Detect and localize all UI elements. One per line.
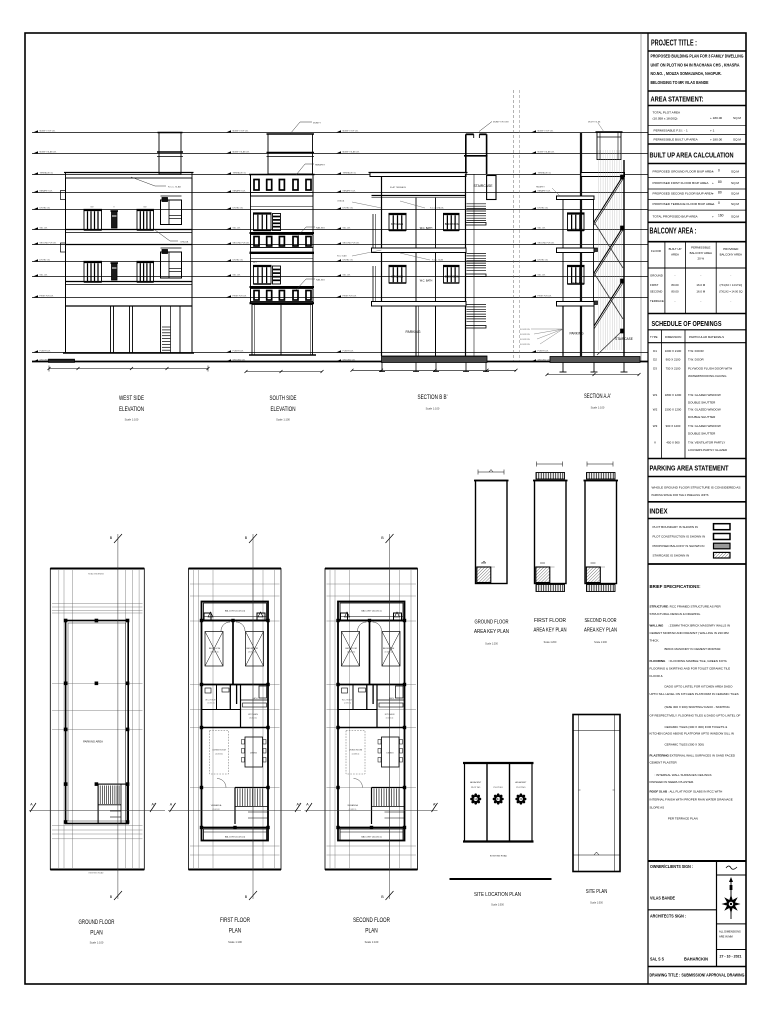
svg-text:PLOT NO: PLOT NO xyxy=(516,787,525,789)
svg-text:BATH: BATH xyxy=(389,697,395,700)
svg-text:0: 0 xyxy=(718,168,720,172)
svg-text:: 230MM THICK BRICK MASONRY WA: : 230MM THICK BRICK MASONRY WALLS IN xyxy=(668,624,730,628)
svg-text:BALCONY (10.0X1.0): BALCONY (10.0X1.0) xyxy=(361,836,381,839)
svg-text:STRUCTURAL DESIGN & DRAWING.: STRUCTURAL DESIGN & DRAWING. xyxy=(650,612,701,616)
svg-text:ARCHITECTS SIGN :: ARCHITECTS SIGN : xyxy=(650,914,686,919)
svg-text:T.W. DOOR: T.W. DOOR xyxy=(688,358,705,362)
svg-text:+: + xyxy=(712,169,714,173)
svg-text:▪ ▪ ▪: ▪ ▪ ▪ xyxy=(253,210,257,212)
svg-text:ELEVATION: ELEVATION xyxy=(119,406,144,413)
svg-text:TERRACE: TERRACE xyxy=(650,299,664,303)
svg-text:SECOND FLOOR: SECOND FLOOR xyxy=(585,618,617,624)
svg-text:LOUVERS PARTLY GLAZED: LOUVERS PARTLY GLAZED xyxy=(688,448,728,452)
svg-text:PLINTH LVL: PLINTH LVL xyxy=(233,350,245,352)
svg-text:WHOLE GROUND FLOOR STRUCTURE I: WHOLE GROUND FLOOR STRUCTURE IS CONSIDER… xyxy=(652,485,741,489)
svg-text:SECTION A.A': SECTION A.A' xyxy=(584,393,611,400)
svg-text:PARKING AREA: PARKING AREA xyxy=(83,739,103,743)
svg-text:OF RESPECTIVELY. FLOORING TILE: OF RESPECTIVELY. FLOORING TILES & DADO U… xyxy=(650,714,741,718)
svg-text:STRUCTURE: STRUCTURE xyxy=(650,605,669,609)
svg-text:900 X 1200: 900 X 1200 xyxy=(666,424,681,428)
svg-text:BRIEF SPECIFICATIONS:: BRIEF SPECIFICATIONS: xyxy=(650,584,701,589)
svg-text:Scale 1:200: Scale 1:200 xyxy=(544,641,557,644)
svg-text:BUILT UP AREA CALCULATION: BUILT UP AREA CALCULATION xyxy=(650,151,734,160)
svg-text:DRAWING TITLE : SUBMISSION/ AP: DRAWING TITLE : SUBMISSION/ APPROVAL DRA… xyxy=(650,973,745,978)
svg-text:T.W. DOOR: T.W. DOOR xyxy=(688,349,705,353)
svg-text:+ 180.00: + 180.00 xyxy=(710,137,722,141)
svg-text:16.0 M: 16.0 M xyxy=(696,290,705,294)
svg-text:SQ.M: SQ.M xyxy=(731,202,739,206)
svg-text:SQ.M: SQ.M xyxy=(733,116,741,120)
svg-text:FIRST FLR LVL: FIRST FLR LVL xyxy=(233,295,248,297)
svg-text:80.00: 80.00 xyxy=(671,290,679,294)
svg-text:RCC SLAB: RCC SLAB xyxy=(337,255,347,258)
svg-text:PARAPET: PARAPET xyxy=(536,186,546,189)
svg-text:ADJACENT: ADJACENT xyxy=(470,781,482,784)
svg-text:1000 X 2100: 1000 X 2100 xyxy=(665,349,682,353)
svg-text:SECOND FLR LVL: SECOND FLR LVL xyxy=(343,242,361,244)
svg-text:SQ.M: SQ.M xyxy=(731,192,739,196)
svg-text:(3.0X3.6): (3.0X3.6) xyxy=(385,652,393,654)
svg-text:KITCHEN DADO ABOVE PLATFORM UP: KITCHEN DADO ABOVE PLATFORM UPTO WINDOW … xyxy=(650,732,734,736)
svg-text:VERANDA: VERANDA xyxy=(571,281,585,285)
svg-text:FLOOR &: FLOOR & xyxy=(650,674,663,678)
svg-text:27 - 10 - 2021: 27 - 10 - 2021 xyxy=(720,955,742,959)
svg-text:+: + xyxy=(712,214,714,218)
svg-text:LINTEL LVL: LINTEL LVL xyxy=(233,259,245,261)
svg-text:GROUND LVL: GROUND LVL xyxy=(233,359,247,361)
svg-text:CEMENT PLASTER: CEMENT PLASTER xyxy=(650,761,678,765)
svg-text:CERAMIC TILES (300 X 300): CERAMIC TILES (300 X 300) xyxy=(650,743,704,747)
svg-text:EXISTING ROAD: EXISTING ROAD xyxy=(490,855,508,858)
svg-text:FLOOR FIN.: FLOOR FIN. xyxy=(520,329,531,331)
svg-text:WATERPROOFING FACING: WATERPROOFING FACING xyxy=(688,374,727,378)
svg-text:(4.0X3.0): (4.0X3.0) xyxy=(352,754,360,756)
svg-text:Scale 1:100: Scale 1:100 xyxy=(125,418,139,422)
svg-text:Scale 1:200: Scale 1:200 xyxy=(594,641,607,644)
svg-text:VILAS BANDE: VILAS BANDE xyxy=(650,896,675,901)
svg-text:PLINTH LVL: PLINTH LVL xyxy=(40,350,52,352)
svg-text:MUMTY SLAB LVL: MUMTY SLAB LVL xyxy=(538,150,556,153)
svg-text:PROJECT TITLE :: PROJECT TITLE : xyxy=(651,39,697,48)
svg-text:GROUND LVL: GROUND LVL xyxy=(538,359,552,361)
svg-text:450 X 900: 450 X 900 xyxy=(666,441,680,445)
svg-text:(7X1)X2 = 14.00 SQ: (7X1)X2 = 14.00 SQ xyxy=(719,290,742,294)
svg-text:FIRST FLOOR: FIRST FLOOR xyxy=(534,618,566,624)
svg-text:PLAN: PLAN xyxy=(90,931,103,937)
svg-text:MUMTY TOP LVL: MUMTY TOP LVL xyxy=(343,130,360,132)
svg-text:0: 0 xyxy=(718,201,720,205)
svg-text:16.0 M: 16.0 M xyxy=(696,283,705,287)
svg-text:CERAMIC TILES (300 X 300) FOR: CERAMIC TILES (300 X 300) FOR TOILETS & xyxy=(650,725,728,729)
svg-text:SECOND FLR LVL: SECOND FLR LVL xyxy=(233,242,251,244)
svg-text:SILL LVL: SILL LVL xyxy=(343,227,352,229)
svg-text:SILL LVL: SILL LVL xyxy=(538,274,547,276)
svg-text:BRICK MASONRY IN CEMENT MORTAR: BRICK MASONRY IN CEMENT MORTAR. xyxy=(650,647,722,651)
svg-text:PLOT CONSTRUCTION IS SHOWN IN: PLOT CONSTRUCTION IS SHOWN IN xyxy=(653,535,706,539)
svg-text:+: + xyxy=(712,202,714,206)
svg-text:80.00: 80.00 xyxy=(671,283,679,287)
svg-text:FIRST FLR LVL: FIRST FLR LVL xyxy=(538,295,553,297)
svg-text:80: 80 xyxy=(718,180,722,184)
svg-text:FIRST FLR LVL: FIRST FLR LVL xyxy=(343,295,358,297)
svg-text:PROPOSED GROUND FLOOR B/UP ARE: PROPOSED GROUND FLOOR B/UP AREA xyxy=(653,169,715,173)
svg-text:R.C.C. SLAB: R.C.C. SLAB xyxy=(168,185,181,188)
svg-text:LIVING ROOM: LIVING ROOM xyxy=(349,750,363,752)
svg-text:RAILING: RAILING xyxy=(316,278,325,281)
svg-text:PERMISSIBLE: PERMISSIBLE xyxy=(691,246,710,250)
svg-text:AREA KEY PLAN: AREA KEY PLAN xyxy=(534,628,567,634)
svg-text:1800 X 1200: 1800 X 1200 xyxy=(665,393,682,397)
svg-text:D2: D2 xyxy=(653,358,657,362)
svg-text:MUMTY SLAB LVL: MUMTY SLAB LVL xyxy=(233,150,251,153)
svg-text:SECTION B B': SECTION B B' xyxy=(418,394,448,401)
svg-text:-: - xyxy=(675,299,676,303)
svg-text:EXISTING ROAD: EXISTING ROAD xyxy=(89,872,104,875)
svg-text:PERMISSIBLE BUILT UP AREA: PERMISSIBLE BUILT UP AREA xyxy=(654,137,699,141)
svg-text:AREA KEY PLAN: AREA KEY PLAN xyxy=(584,628,617,634)
svg-text:Scale 1:100: Scale 1:100 xyxy=(276,418,290,422)
svg-text:PARAPET LVL: PARAPET LVL xyxy=(538,189,552,192)
svg-text:BUILT UP: BUILT UP xyxy=(669,247,682,251)
svg-text:1500 X 1200: 1500 X 1200 xyxy=(665,408,682,412)
svg-text:VERANDA: VERANDA xyxy=(347,804,358,807)
svg-text:THICK.: THICK. xyxy=(650,639,660,643)
svg-text:PROPOSED SECOND FLOOR B/UP ARE: PROPOSED SECOND FLOOR B/UP AREA xyxy=(653,192,714,196)
svg-text:PARKING: PARKING xyxy=(405,330,420,334)
svg-text:BALCONY (10.0X1.0): BALCONY (10.0X1.0) xyxy=(225,836,245,839)
svg-text:CHAJJA: CHAJJA xyxy=(180,240,189,243)
svg-text:(10.058 x 18.00Q): (10.058 x 18.00Q) xyxy=(653,117,678,121)
svg-text:-: - xyxy=(700,274,701,278)
svg-text:SLOPE AS: SLOPE AS xyxy=(650,806,665,810)
svg-text:VERANDA: VERANDA xyxy=(571,228,585,232)
svg-text:LINTEL LVL: LINTEL LVL xyxy=(40,259,52,261)
svg-text:BEDROOM: BEDROOM xyxy=(209,648,220,650)
svg-text:SILL LVL: SILL LVL xyxy=(40,274,49,276)
svg-text:-: - xyxy=(700,299,701,303)
svg-text:SECOND: SECOND xyxy=(650,290,662,294)
svg-text:PARAPET LVL: PARAPET LVL xyxy=(40,189,54,192)
svg-text:DIMENSION: DIMENSION xyxy=(665,335,681,339)
svg-text:(2.0X1.5): (2.0X1.5) xyxy=(212,809,220,811)
svg-text:BALCONY AREA :: BALCONY AREA : xyxy=(650,227,697,236)
svg-text:SILL LVL: SILL LVL xyxy=(538,227,547,229)
svg-text:UPTO SILL LEVEL ON KITCHEN PLA: UPTO SILL LEVEL ON KITCHEN PLATFORM IN C… xyxy=(650,692,739,696)
svg-text:+ 1: + 1 xyxy=(710,129,715,133)
svg-text:160: 160 xyxy=(718,213,724,217)
svg-text:W2: W2 xyxy=(653,408,658,412)
svg-text:PARAPET LVL: PARAPET LVL xyxy=(233,189,247,192)
svg-text:MUMTY TOP LVL: MUMTY TOP LVL xyxy=(40,130,57,132)
svg-text:: FLOORING MARBLE TILE, GREEN: : FLOORING MARBLE TILE, GREEN KOTA xyxy=(668,659,727,663)
svg-text:BALCONY AREA: BALCONY AREA xyxy=(720,253,742,257)
svg-text:W.C./TOILET: W.C./TOILET xyxy=(342,700,354,702)
svg-text:FLOOR FIN.: FLOOR FIN. xyxy=(520,334,531,336)
svg-text:W.C. BATH: W.C. BATH xyxy=(420,227,433,230)
svg-text:T.W. GLAZED WINDOW: T.W. GLAZED WINDOW xyxy=(688,424,721,428)
svg-text:Scale 1:100: Scale 1:100 xyxy=(426,407,440,411)
svg-text:CHAJJA: CHAJJA xyxy=(337,200,345,203)
svg-text:ROOF SLAB: ROOF SLAB xyxy=(650,790,668,794)
svg-text:FLOOR FIN.: FLOOR FIN. xyxy=(520,339,531,341)
svg-text:V: V xyxy=(654,441,656,445)
svg-text:PER TERRACE PLAN: PER TERRACE PLAN xyxy=(650,817,698,821)
svg-text:WALLING: WALLING xyxy=(650,624,664,628)
svg-text:KITCHEN: KITCHEN xyxy=(391,222,403,226)
svg-text:PARKING SPACE FOR THE 2 DWELLI: PARKING SPACE FOR THE 2 DWELLING UNITS xyxy=(652,493,709,497)
svg-text:-: - xyxy=(730,300,731,303)
svg-text:BEDROOM: BEDROOM xyxy=(345,648,356,650)
svg-text:PROPOSED BALCONY IS SHOWN IN: PROPOSED BALCONY IS SHOWN IN xyxy=(653,544,705,548)
svg-text:PARKING AREA STATEMENT: PARKING AREA STATEMENT xyxy=(650,464,729,473)
svg-text:BAHARCKIN: BAHARCKIN xyxy=(684,957,708,962)
svg-text:SQ.M: SQ.M xyxy=(731,181,739,185)
svg-text:WEST SIDE: WEST SIDE xyxy=(119,395,144,402)
svg-text:STAIRCASE IS SHOWN IN: STAIRCASE IS SHOWN IN xyxy=(653,553,690,557)
svg-text:LINTEL LVL: LINTEL LVL xyxy=(343,259,355,261)
svg-text:(7X1)X2 = 14 M SQ: (7X1)X2 = 14 M SQ xyxy=(719,283,742,287)
svg-text:BEDROOM: BEDROOM xyxy=(246,648,257,650)
svg-text:PROVIDED: PROVIDED xyxy=(723,247,738,251)
svg-text:GROUND FLOOR: GROUND FLOOR xyxy=(79,920,115,926)
svg-text:INTERNAL FINISH WITH PROPER RA: INTERNAL FINISH WITH PROPER RAIN WATER D… xyxy=(650,798,733,802)
svg-text:SCHEDULE OF OPENINGS: SCHEDULE OF OPENINGS xyxy=(652,319,722,328)
svg-text:LINTEL LVL: LINTEL LVL xyxy=(343,207,355,209)
svg-text:BATH: BATH xyxy=(253,697,259,700)
svg-text:(2.0X1.5): (2.0X1.5) xyxy=(344,703,351,705)
svg-text:PARKING: PARKING xyxy=(569,332,584,336)
svg-text:LINTEL LVL: LINTEL LVL xyxy=(233,207,245,209)
svg-text:PLOT NO: PLOT NO xyxy=(494,787,503,789)
svg-text:T.W. GLAZED WINDOW: T.W. GLAZED WINDOW xyxy=(688,408,721,412)
svg-text:PERMISSABLE F.S.I. - 1: PERMISSABLE F.S.I. - 1 xyxy=(654,129,688,133)
svg-text:: EXTERNAL WALL SURFACES IN SA: : EXTERNAL WALL SURFACES IN SAND FACED xyxy=(668,754,736,758)
svg-text:FIRST FLOOR: FIRST FLOOR xyxy=(220,918,251,924)
svg-text:BALCONY AREA: BALCONY AREA xyxy=(690,251,712,255)
svg-text:PLOT NO: PLOT NO xyxy=(471,787,480,789)
svg-text:PARAPET LVL: PARAPET LVL xyxy=(343,189,357,192)
svg-text:Scale 1:100: Scale 1:100 xyxy=(90,941,104,945)
svg-text:D3: D3 xyxy=(653,367,657,371)
svg-text:AREA KEY PLAN: AREA KEY PLAN xyxy=(474,629,509,635)
svg-text:(SIZE 300 X 300) SKIRTING/ DAD: (SIZE 300 X 300) SKIRTING/ DADO - SKIRTI… xyxy=(650,705,731,709)
svg-text:BEDROOM: BEDROOM xyxy=(445,222,460,226)
svg-text:900 X 2100: 900 X 2100 xyxy=(666,358,681,362)
svg-text:+ 180.00: + 180.00 xyxy=(710,116,722,120)
svg-text:FLOORING & SKIRTING AND FOR TO: FLOORING & SKIRTING AND FOR TOILET CERAM… xyxy=(650,667,731,671)
svg-text:DOUBLE SHUTTER: DOUBLE SHUTTER xyxy=(688,400,716,404)
svg-text:TOTAL PLOT AREA: TOTAL PLOT AREA xyxy=(653,111,682,115)
svg-text:OWNER/CLIENTS SIGN :: OWNER/CLIENTS SIGN : xyxy=(650,864,693,869)
svg-text:LINTEL LVL: LINTEL LVL xyxy=(538,207,550,209)
svg-text:LIVING ROOM: LIVING ROOM xyxy=(212,750,226,752)
svg-text:SITE LOCATION PLAN: SITE LOCATION PLAN xyxy=(474,892,521,898)
svg-text:20 %: 20 % xyxy=(698,257,705,261)
svg-text:DINING: DINING xyxy=(250,753,257,755)
svg-text:+: + xyxy=(712,192,714,196)
svg-text:SILL LVL: SILL LVL xyxy=(40,227,49,229)
svg-text:MUMTY TOP LVL: MUMTY TOP LVL xyxy=(538,130,555,132)
svg-text:DOUBLE SHUTTER: DOUBLE SHUTTER xyxy=(688,431,716,435)
svg-text:RAILING: RAILING xyxy=(316,226,325,229)
svg-text:SAL S S: SAL S S xyxy=(650,957,664,962)
svg-text:AREA: AREA xyxy=(671,253,679,257)
svg-text:PARTICULAR MATERIALS: PARTICULAR MATERIALS xyxy=(689,335,724,339)
svg-text:TOTAL PROPOSED B/UP AREA: TOTAL PROPOSED B/UP AREA xyxy=(653,214,699,218)
svg-text:FINISHED IN NEERU PLASTER.: FINISHED IN NEERU PLASTER. xyxy=(650,780,695,784)
svg-text:GROUND: GROUND xyxy=(650,274,663,278)
svg-text:ROAD WIDENING: ROAD WIDENING xyxy=(88,573,104,576)
svg-text:▪ ▪ ▪: ▪ ▪ ▪ xyxy=(253,262,257,264)
svg-text:BEDROOM: BEDROOM xyxy=(383,648,394,650)
svg-text:(4.0X3.0): (4.0X3.0) xyxy=(215,754,223,756)
svg-text:W.C. BATH: W.C. BATH xyxy=(420,280,433,283)
svg-text:Scale 1:500: Scale 1:500 xyxy=(590,902,603,905)
svg-text:: INTERNAL WALL SURFACES CEILI: : INTERNAL WALL SURFACES CEILINGS xyxy=(650,773,712,777)
svg-text:BALCONY (10.0X1.0): BALCONY (10.0X1.0) xyxy=(361,610,381,613)
svg-text:-: - xyxy=(675,274,676,278)
svg-text:(3.0X3.6): (3.0X3.6) xyxy=(211,652,219,654)
svg-text:: ALL FLAT ROOF SLABS IN RCC W: : ALL FLAT ROOF SLABS IN RCC WITH xyxy=(668,790,722,794)
svg-text:: RCC FRAMED STRUCTURE AS PER: : RCC FRAMED STRUCTURE AS PER xyxy=(668,605,722,609)
svg-text:PLASTERING: PLASTERING xyxy=(650,754,670,758)
svg-text:MUMTY SLAB LVL: MUMTY SLAB LVL xyxy=(343,150,361,153)
svg-text:SQ.M: SQ.M xyxy=(733,137,741,141)
svg-text:PLYWOOD FLUSH DOOR WITH: PLYWOOD FLUSH DOOR WITH xyxy=(688,367,732,371)
svg-text:PLOT BOUNDARY IS SHOWN IN: PLOT BOUNDARY IS SHOWN IN xyxy=(653,525,698,529)
svg-text:80: 80 xyxy=(718,191,722,195)
svg-text:PROPOSED TERRACE FLOOR B/UP AR: PROPOSED TERRACE FLOOR B/UP AREA xyxy=(653,202,716,206)
svg-text:MUMTY SLAB: MUMTY SLAB xyxy=(588,121,601,124)
svg-text:PARAPET: PARAPET xyxy=(315,163,326,166)
svg-text:GROUND FLOOR: GROUND FLOOR xyxy=(475,620,509,626)
svg-text:MUMTY ROOM: MUMTY ROOM xyxy=(493,122,509,124)
svg-text:SITE PLAN: SITE PLAN xyxy=(586,889,608,895)
svg-text:+: + xyxy=(712,181,714,185)
svg-text:SECOND FLR LVL: SECOND FLR LVL xyxy=(40,242,58,244)
svg-text:VERANDA: VERANDA xyxy=(211,804,222,807)
svg-text:INDEX: INDEX xyxy=(650,507,668,516)
svg-text:Scale 1:100: Scale 1:100 xyxy=(591,406,605,410)
svg-text:FLOORING: FLOORING xyxy=(650,659,666,663)
svg-text:DADO UPTO LINTEL FOR KITCHEN A: DADO UPTO LINTEL FOR KITCHEN AREA DADO xyxy=(650,685,734,689)
svg-text:BALCONY (10.0X1.0): BALCONY (10.0X1.0) xyxy=(225,610,245,613)
svg-text:ADJACENT: ADJACENT xyxy=(515,781,527,784)
svg-text:SECOND FLOOR: SECOND FLOOR xyxy=(353,918,391,924)
svg-text:W1: W1 xyxy=(653,393,658,397)
svg-text:ALL DIMENSIONS: ALL DIMENSIONS xyxy=(719,930,741,934)
svg-text:MUMTY: MUMTY xyxy=(313,122,322,124)
svg-text:STAIRCASE: STAIRCASE xyxy=(474,184,494,188)
svg-text:(3.0X3.6): (3.0X3.6) xyxy=(248,652,256,654)
svg-text:SILL LVL: SILL LVL xyxy=(233,227,242,229)
svg-text:TYPE: TYPE xyxy=(650,335,658,339)
svg-text:Scale 1:500: Scale 1:500 xyxy=(491,904,504,907)
svg-text:TERRACE LVL: TERRACE LVL xyxy=(40,171,54,174)
svg-text:SILL LVL: SILL LVL xyxy=(233,274,242,276)
svg-text:STAIRCASE: STAIRCASE xyxy=(615,337,633,341)
svg-text:Scale 1:100: Scale 1:100 xyxy=(365,940,379,944)
svg-text:ELEVATION: ELEVATION xyxy=(271,406,296,413)
svg-text:W.C./TOILET: W.C./TOILET xyxy=(205,700,217,702)
svg-text:PLAN: PLAN xyxy=(365,929,378,935)
svg-text:TERRACE LVL: TERRACE LVL xyxy=(343,171,357,174)
svg-text:LINTEL LVL: LINTEL LVL xyxy=(538,259,550,261)
svg-text:SQ.M: SQ.M xyxy=(731,169,739,173)
svg-text:FIRST FLR LVL: FIRST FLR LVL xyxy=(40,295,55,297)
svg-text:FIRST: FIRST xyxy=(650,283,659,287)
svg-text:LINTEL LVL: LINTEL LVL xyxy=(40,207,52,209)
svg-text:R.C.C. CHAJJA: R.C.C. CHAJJA xyxy=(430,207,444,210)
svg-text:(3.0X3.6): (3.0X3.6) xyxy=(347,652,355,654)
svg-text:T.W. VENTILATOR PARTLY: T.W. VENTILATOR PARTLY xyxy=(688,441,725,445)
svg-text:750 X 2100: 750 X 2100 xyxy=(666,367,681,371)
svg-text:UNIT ON PLOT NO 64 IN RACHANA: UNIT ON PLOT NO 64 IN RACHANA CHS , KHAS… xyxy=(651,62,740,67)
svg-text:PLINTH LVL: PLINTH LVL xyxy=(343,350,355,352)
svg-text:MUMTY SLAB LVL: MUMTY SLAB LVL xyxy=(40,150,58,153)
svg-text:BEDROOM: BEDROOM xyxy=(445,275,460,279)
svg-text:NO.NO. , MOUZA SOMALWADA, NAGP: NO.NO. , MOUZA SOMALWADA, NAGPUR. xyxy=(651,71,722,76)
svg-text:SILL LVL: SILL LVL xyxy=(343,274,352,276)
svg-text:DOUBLE SHUTTER: DOUBLE SHUTTER xyxy=(688,415,716,419)
svg-text:PROPOSED BUILDING PLAN FOR 3 F: PROPOSED BUILDING PLAN FOR 3 FAMILY DWEL… xyxy=(651,54,744,59)
svg-text:SQ.M: SQ.M xyxy=(731,214,739,218)
svg-text:D1: D1 xyxy=(653,349,657,353)
svg-text:(2.0X1.5): (2.0X1.5) xyxy=(208,703,215,705)
svg-text:PROPOSED FIRST FLOOR B/UP AREA: PROPOSED FIRST FLOOR B/UP AREA xyxy=(653,181,710,185)
svg-text:(2.0X1.5): (2.0X1.5) xyxy=(349,809,357,811)
svg-text:TERRACE LVL: TERRACE LVL xyxy=(233,171,247,174)
svg-text:FLAT TERRACE: FLAT TERRACE xyxy=(390,186,407,189)
svg-text:W3: W3 xyxy=(653,424,658,428)
svg-text:Scale 1:200: Scale 1:200 xyxy=(485,643,498,646)
svg-text:BELONGING TO MR VILAS BANDE: BELONGING TO MR VILAS BANDE xyxy=(651,80,709,85)
svg-text:R.C.C. SLAB: R.C.C. SLAB xyxy=(432,259,444,262)
svg-text:FLOOR FIN.: FLOOR FIN. xyxy=(520,344,531,346)
svg-text:CEMENT MORTAR AND PARAPET | WA: CEMENT MORTAR AND PARAPET | WALLING IN 2… xyxy=(650,631,730,635)
svg-text:FLOOR: FLOOR xyxy=(651,249,661,253)
svg-text:MUMTY TOP LVL: MUMTY TOP LVL xyxy=(233,130,250,132)
svg-text:ARE IN MM: ARE IN MM xyxy=(719,935,733,939)
svg-text:KITCHEN: KITCHEN xyxy=(391,275,403,279)
svg-text:T.W. GLAZED WINDOW: T.W. GLAZED WINDOW xyxy=(688,393,721,397)
svg-text:PLINTH LVL: PLINTH LVL xyxy=(538,350,550,352)
svg-text:Scale 1:100: Scale 1:100 xyxy=(228,940,242,944)
svg-text:DINING: DINING xyxy=(387,753,394,755)
svg-text:GROUND LVL: GROUND LVL xyxy=(343,359,357,361)
svg-text:-: - xyxy=(730,275,731,278)
svg-text:TERRACE LVL: TERRACE LVL xyxy=(538,171,552,174)
svg-text:AREA STATEMENT:: AREA STATEMENT: xyxy=(651,95,704,104)
svg-text:PLAN: PLAN xyxy=(229,929,242,935)
svg-text:SOUTH SIDE: SOUTH SIDE xyxy=(270,395,297,402)
svg-text:SECOND FLR LVL: SECOND FLR LVL xyxy=(538,242,556,244)
